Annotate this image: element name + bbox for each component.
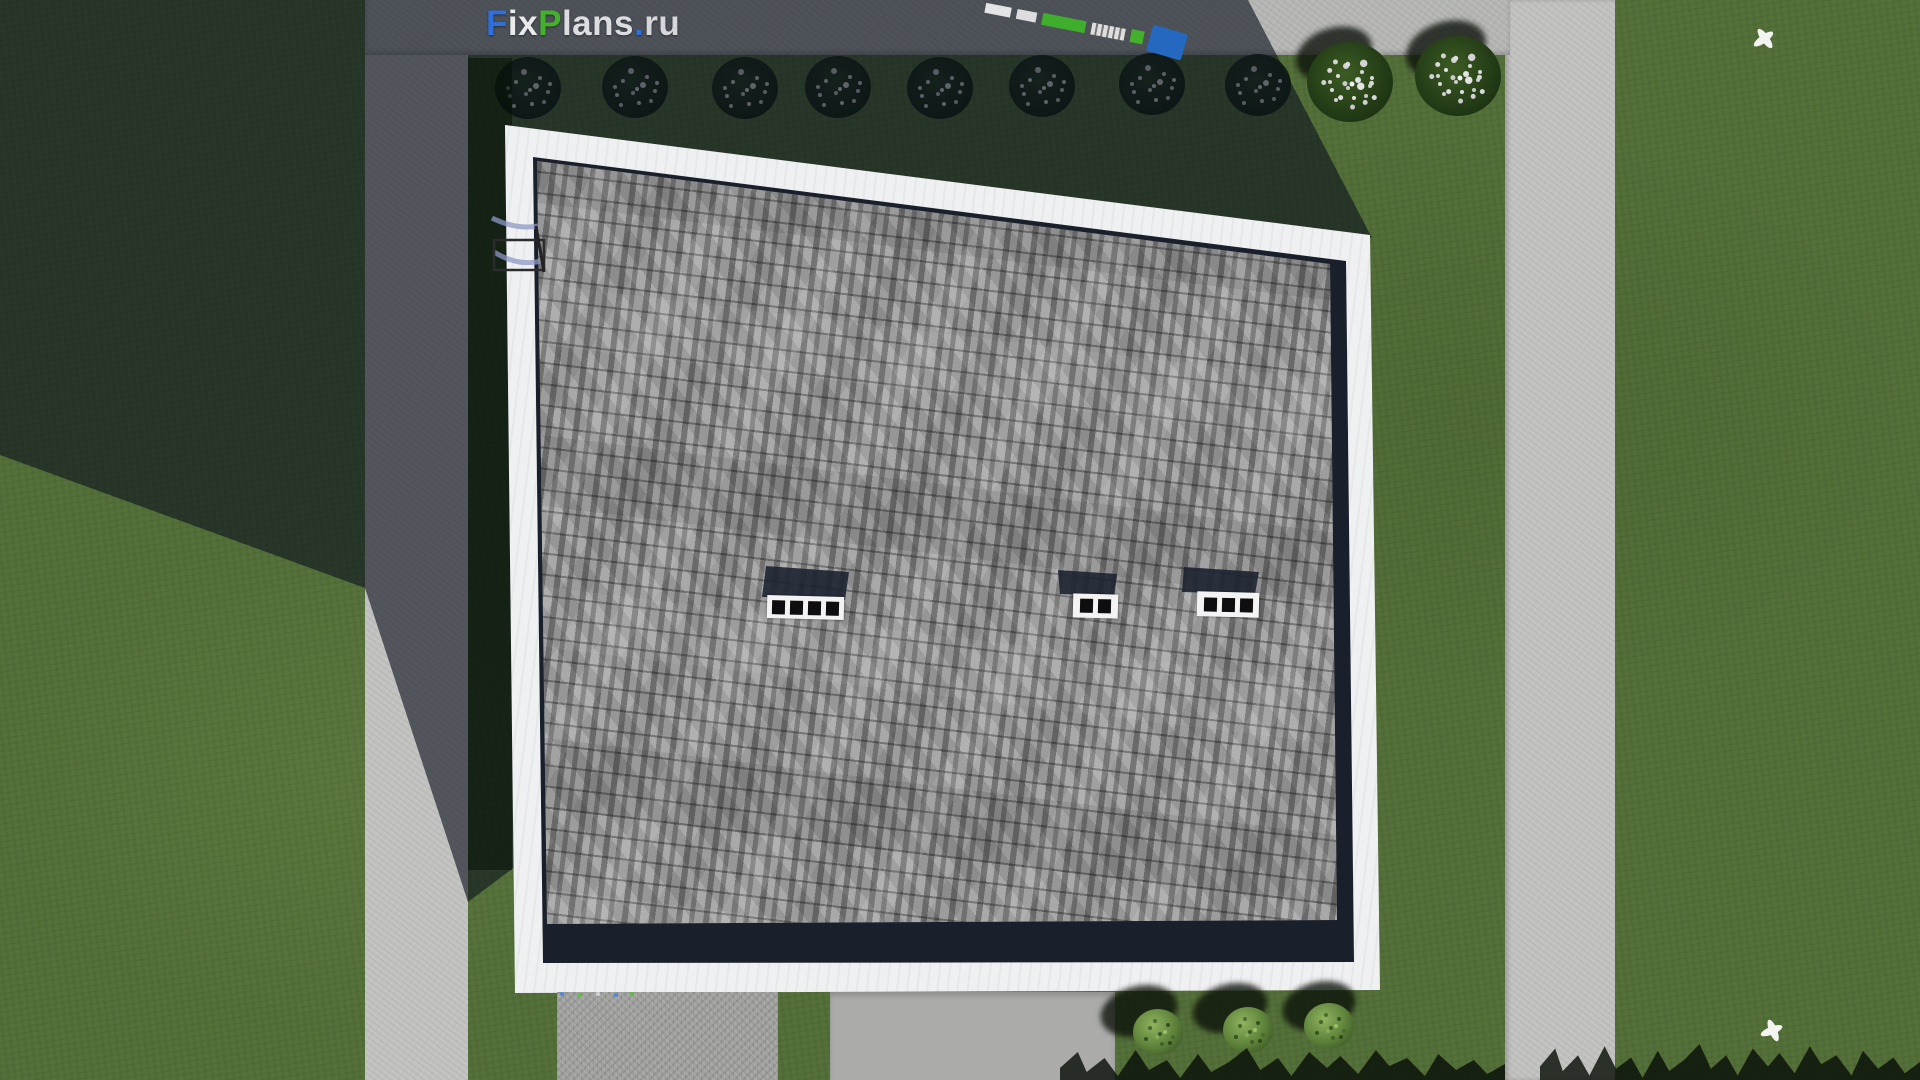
- watermark-letter: F: [486, 4, 508, 43]
- bottom-paved-path: [557, 992, 778, 1080]
- flowering-bush: [1415, 36, 1501, 116]
- truck-segment-green: [1129, 29, 1144, 44]
- skylight-pane: [826, 601, 839, 615]
- bush-flower-speckles: [1456, 74, 1463, 81]
- flower-speck: [560, 992, 564, 996]
- skylight-4-pane: [767, 595, 845, 620]
- skylight-pane: [1239, 598, 1252, 612]
- skylight-pane: [790, 600, 803, 614]
- watermark-letter: .: [634, 4, 644, 43]
- truck-segment-green: [1041, 12, 1086, 32]
- flower-speck: [596, 992, 600, 996]
- wire-mark: [494, 252, 544, 263]
- watermark-letter: ru: [644, 4, 680, 43]
- bird-icon: [1750, 24, 1780, 54]
- roof-corner-frame-object: [486, 196, 564, 282]
- skylight-pane: [808, 601, 821, 615]
- garden-bush: [1223, 1007, 1273, 1053]
- flowering-bush: [1307, 42, 1393, 122]
- flower-speck: [630, 992, 634, 996]
- skylight-pane: [772, 600, 785, 614]
- flower-speck: [614, 993, 618, 997]
- skylight-pane: [1080, 599, 1093, 613]
- garden-bush: [1304, 1003, 1354, 1049]
- skylight-pane: [1203, 597, 1216, 611]
- right-road: [1505, 0, 1615, 1080]
- garden-bush: [1133, 1009, 1183, 1055]
- aerial-render-scene: FixPlans.ru: [0, 0, 1920, 1080]
- skylight-pane: [1098, 599, 1111, 613]
- watermark-letter: lans: [562, 4, 634, 43]
- fixplans-watermark: FixPlans.ru: [486, 4, 680, 44]
- shaded-grass-strip: [468, 58, 512, 870]
- bush-leaf-speckles: [1158, 1032, 1162, 1036]
- wire-mark: [492, 218, 538, 227]
- bush-flower-speckles: [1348, 80, 1355, 87]
- skylight-pane: [1221, 597, 1234, 611]
- bush-leaf-speckles: [1329, 1026, 1333, 1030]
- watermark-letter: ix: [508, 4, 538, 43]
- flower-speck: [578, 993, 582, 997]
- watermark-letter: P: [538, 4, 562, 43]
- bush-leaf-speckles: [1248, 1030, 1252, 1034]
- skylight-3-pane: [1197, 591, 1260, 618]
- truck-segment-white: [984, 2, 1011, 17]
- truck-segment-white: [1016, 8, 1038, 22]
- skylight-2-pane: [1073, 593, 1119, 618]
- truck-segment-striped: [1090, 22, 1126, 40]
